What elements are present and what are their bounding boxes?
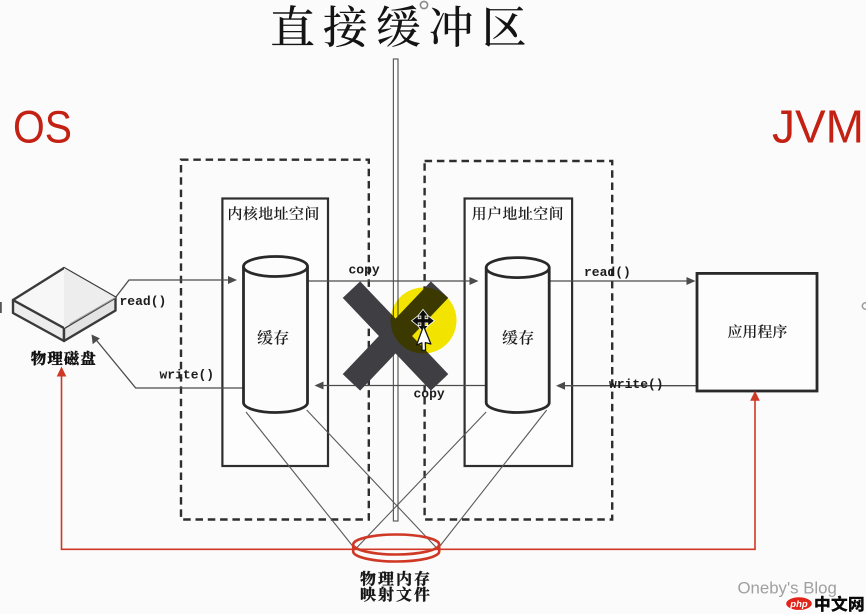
svg-text:write(): write() — [160, 368, 215, 383]
svg-text:copy: copy — [349, 263, 380, 278]
svg-text:JVM: JVM — [772, 101, 864, 153]
svg-text:write(): write() — [609, 377, 664, 392]
svg-text:php: php — [789, 599, 808, 610]
svg-text:Oneby's Blog: Oneby's Blog — [738, 579, 837, 598]
svg-text:OS: OS — [13, 102, 72, 153]
svg-text:read(): read() — [584, 265, 631, 280]
svg-text:read(): read() — [120, 294, 167, 309]
